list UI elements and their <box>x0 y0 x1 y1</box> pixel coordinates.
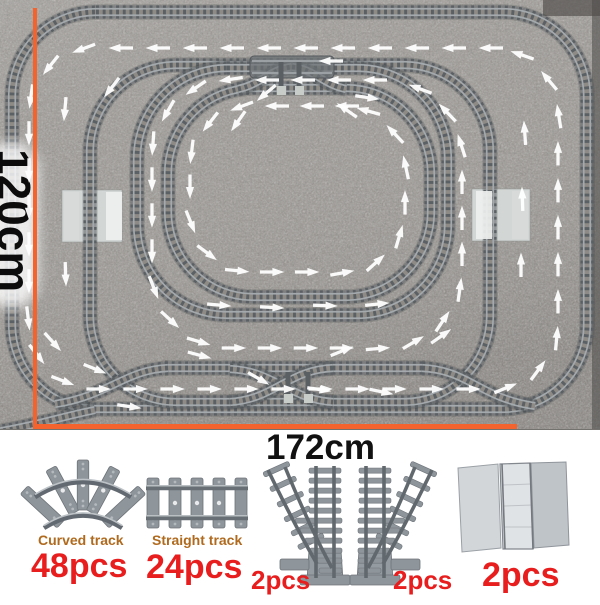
svg-text:24pcs: 24pcs <box>146 548 242 586</box>
svg-text:48pcs: 48pcs <box>31 547 127 585</box>
svg-text:2pcs: 2pcs <box>482 556 560 594</box>
svg-text:2pcs: 2pcs <box>393 565 452 595</box>
svg-text:172cm: 172cm <box>266 428 375 467</box>
svg-text:Straight track: Straight track <box>152 532 242 548</box>
svg-text:2pcs: 2pcs <box>251 565 310 595</box>
svg-text:Curved track: Curved track <box>38 532 124 548</box>
